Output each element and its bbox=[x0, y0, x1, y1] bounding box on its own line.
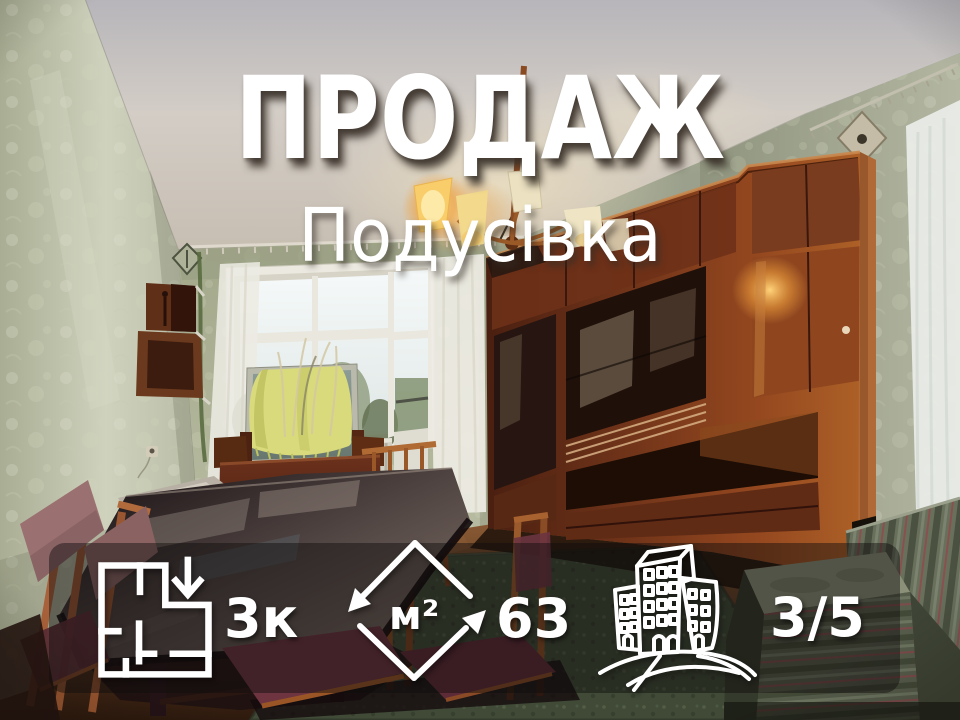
area-unit: м² bbox=[389, 596, 439, 636]
area-value: 63 bbox=[496, 592, 571, 646]
rooms-count: 3к bbox=[224, 592, 298, 646]
building-icon bbox=[598, 538, 758, 708]
floor-plan-icon bbox=[94, 556, 216, 682]
floor-of-total: 3/5 bbox=[770, 591, 865, 645]
deal-type-title: ПРОДАЖ bbox=[91, 62, 869, 176]
district-subtitle: Подусівка bbox=[34, 199, 927, 273]
listing-promo-image: ПРОДАЖ Подусівка 3к м² 63 bbox=[0, 0, 960, 720]
